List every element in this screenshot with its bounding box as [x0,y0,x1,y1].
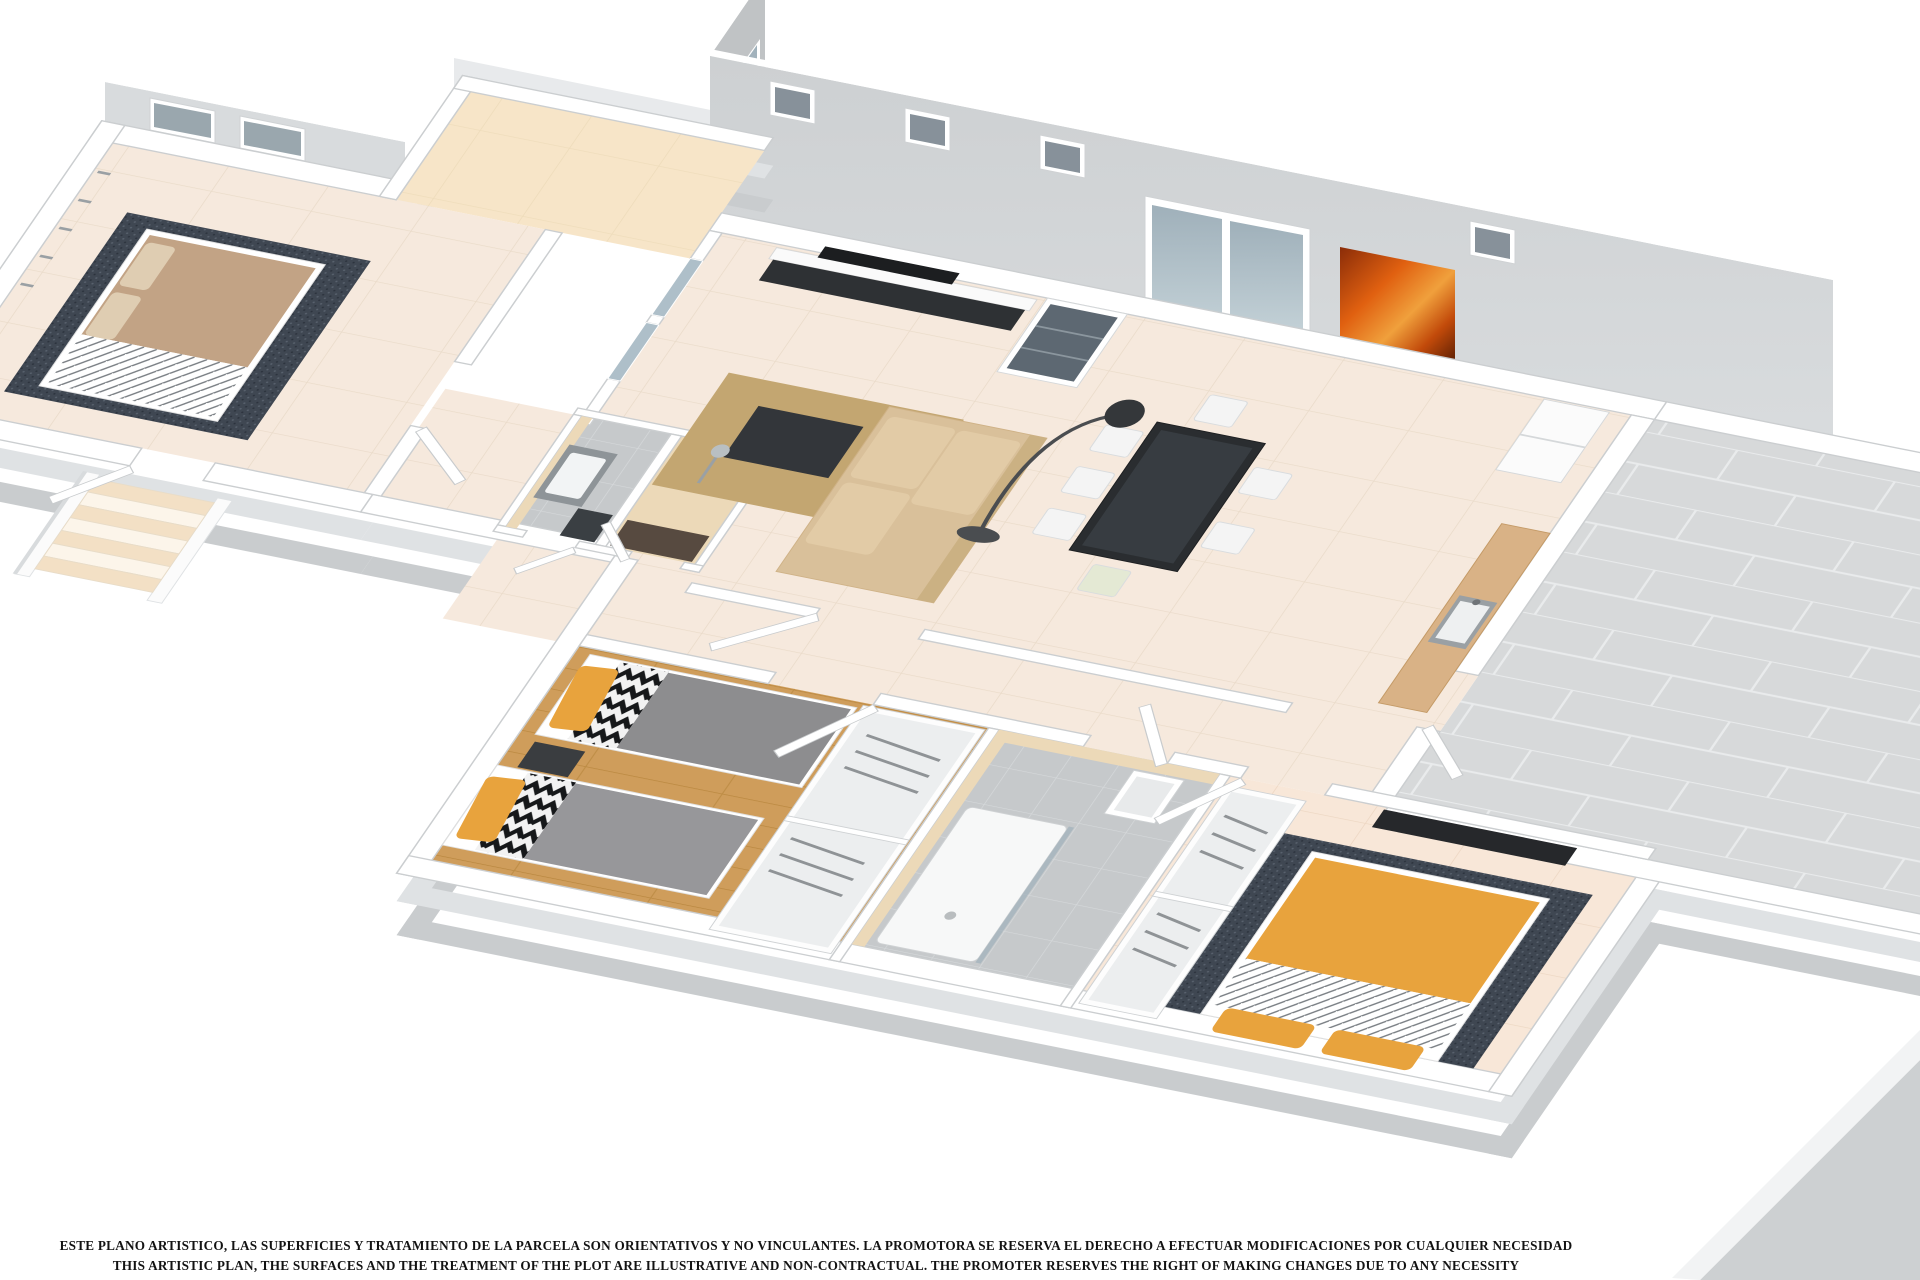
disclaimer-line-spanish: ESTE PLANO ARTISTICO, LAS SUPERFICIES Y … [0,1236,1632,1256]
disclaimer: ESTE PLANO ARTISTICO, LAS SUPERFICIES Y … [0,1236,1632,1276]
floor-plan-render [0,0,1920,1280]
disclaimer-line-english: THIS ARTISTIC PLAN, THE SURFACES AND THE… [0,1256,1632,1276]
